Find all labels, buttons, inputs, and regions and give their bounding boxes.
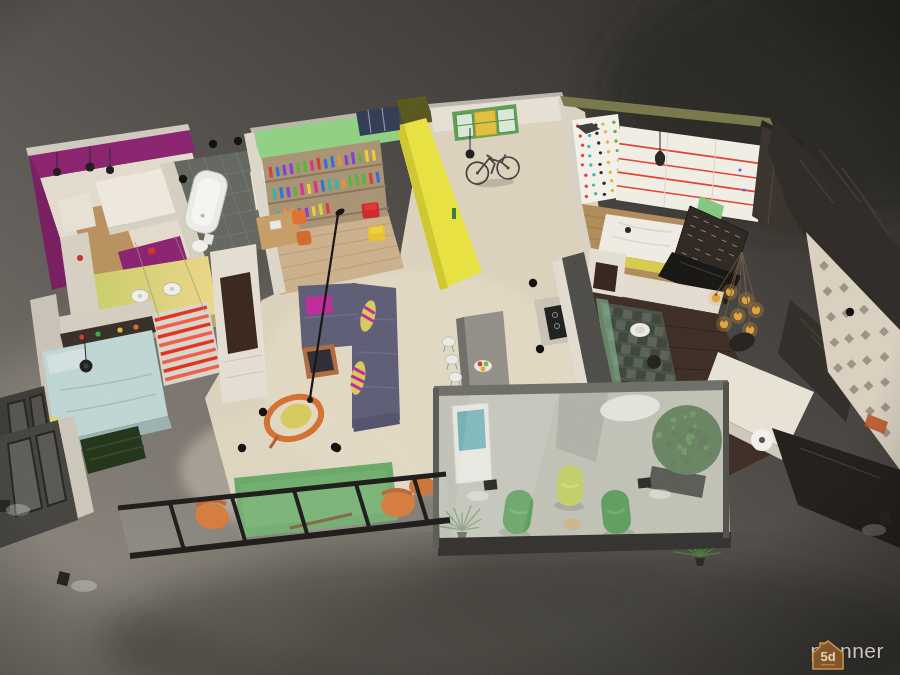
render-viewport: planner 5d [0,0,900,675]
planner-5d-house-icon: 5d [810,639,846,671]
watermark-badge-text: 5d [821,649,836,664]
planner-5d-watermark: planner 5d [810,639,884,663]
vignette [0,0,900,675]
apartment-render [0,0,900,675]
